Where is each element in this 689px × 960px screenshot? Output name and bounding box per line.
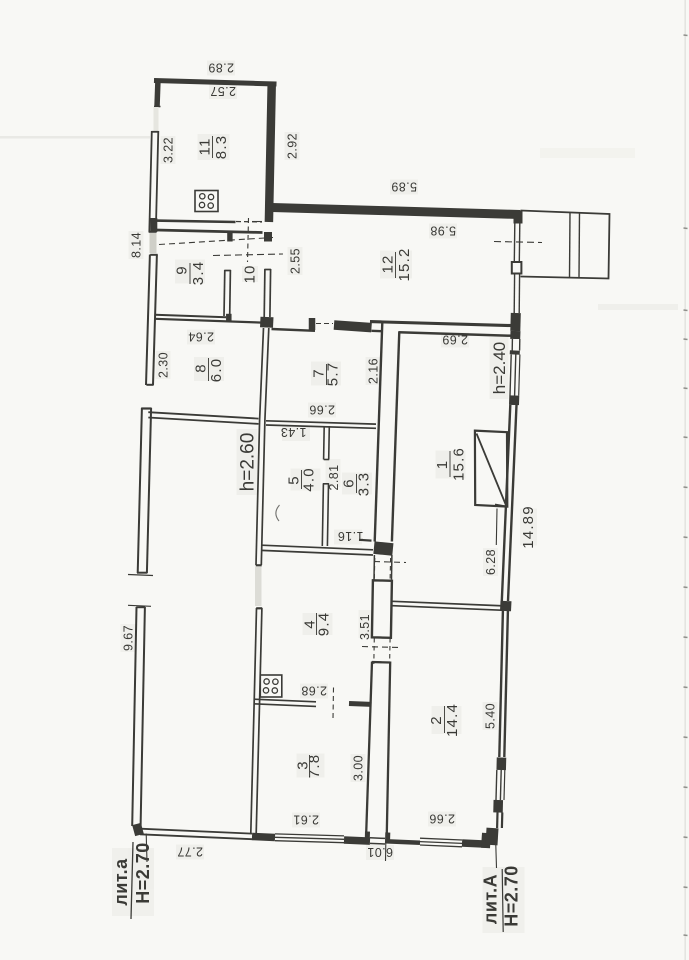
svg-text:9.4: 9.4: [316, 612, 333, 636]
svg-text:Н=2.70: Н=2.70: [502, 865, 522, 927]
svg-text:2.30: 2.30: [156, 352, 170, 378]
svg-text:8.3: 8.3: [213, 135, 230, 159]
svg-text:2.81: 2.81: [327, 465, 341, 491]
svg-text:5.40: 5.40: [483, 703, 497, 729]
svg-text:2: 2: [428, 715, 445, 725]
svg-text:1: 1: [434, 460, 451, 470]
svg-text:3.22: 3.22: [161, 137, 175, 163]
svg-text:1.16: 1.16: [338, 529, 364, 543]
svg-text:3.00: 3.00: [351, 755, 365, 781]
svg-text:8: 8: [193, 363, 210, 373]
svg-text:6.28: 6.28: [484, 549, 498, 575]
svg-text:1.43: 1.43: [281, 425, 307, 439]
svg-text:3.3: 3.3: [356, 472, 373, 496]
svg-text:5.7: 5.7: [325, 362, 342, 386]
svg-text:6.0: 6.0: [208, 358, 225, 382]
svg-text:2.69: 2.69: [442, 333, 468, 347]
svg-text:5.98: 5.98: [430, 224, 456, 238]
svg-text:2.64: 2.64: [188, 330, 214, 344]
svg-text:2.57: 2.57: [210, 84, 236, 98]
svg-text:2.66: 2.66: [429, 812, 455, 826]
svg-text:14.4: 14.4: [444, 703, 461, 737]
svg-text:2.61: 2.61: [293, 813, 319, 827]
svg-text:2.55: 2.55: [288, 248, 302, 274]
svg-text:9: 9: [174, 265, 191, 275]
svg-text:лит.а: лит.а: [111, 858, 131, 906]
svg-text:2.68: 2.68: [301, 684, 327, 698]
svg-text:12: 12: [380, 254, 397, 273]
svg-text:14.89: 14.89: [520, 505, 537, 549]
svg-text:2.77: 2.77: [177, 845, 203, 859]
svg-text:Н=2.70: Н=2.70: [133, 842, 153, 904]
svg-text:3.4: 3.4: [190, 261, 207, 285]
svg-text:11: 11: [197, 138, 214, 156]
svg-text:15.6: 15.6: [451, 447, 468, 481]
svg-text:3.51: 3.51: [358, 614, 372, 640]
svg-text:2.16: 2.16: [366, 358, 380, 384]
svg-text:2.89: 2.89: [208, 61, 234, 75]
svg-text:10: 10: [242, 264, 259, 283]
svg-text:8.14: 8.14: [129, 232, 143, 258]
svg-text:9.67: 9.67: [121, 625, 135, 651]
svg-text:h=2.60: h=2.60: [238, 433, 259, 492]
svg-text:h=2.40: h=2.40: [490, 342, 509, 394]
svg-text:2.66: 2.66: [309, 403, 335, 417]
svg-text:7.8: 7.8: [306, 754, 323, 778]
svg-text:15.2: 15.2: [396, 248, 413, 282]
svg-text:5.89: 5.89: [391, 180, 417, 194]
svg-text:2.92: 2.92: [285, 133, 299, 159]
svg-text:4.0: 4.0: [301, 467, 318, 491]
svg-text:лит.А: лит.А: [481, 874, 501, 924]
svg-text:6.01: 6.01: [367, 845, 393, 859]
